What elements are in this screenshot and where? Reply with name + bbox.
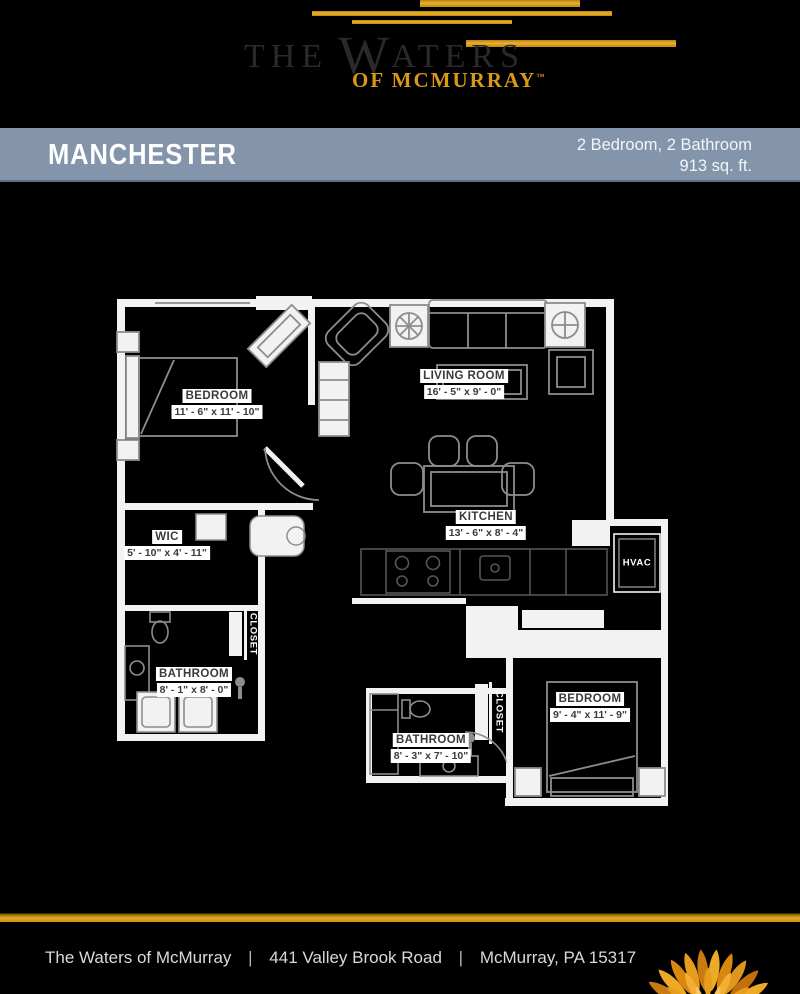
nightstand	[515, 768, 541, 796]
sofa	[429, 300, 547, 348]
toilet	[410, 701, 430, 717]
door-knob-icon	[235, 677, 245, 687]
plan-banner: MANCHESTER 2 Bedroom, 2 Bathroom 913 sq.…	[0, 128, 800, 182]
label-bedroom-1: BEDROOM 11' - 6" x 11' - 10"	[171, 389, 262, 419]
toilet	[152, 621, 168, 643]
plan-specs: 2 Bedroom, 2 Bathroom 913 sq. ft.	[577, 135, 752, 176]
label-bathroom-2: BATHROOM 8' - 3" x 7' - 10"	[391, 733, 471, 763]
label-kitchen: KITCHEN 13' - 6" x 8' - 4"	[446, 510, 526, 540]
door-leaf	[265, 448, 303, 486]
window-line	[155, 302, 250, 304]
nightstand	[117, 440, 139, 460]
armchair	[322, 299, 393, 370]
footer-separator: |	[459, 948, 463, 967]
dining-chair	[467, 436, 497, 466]
flyer-page: THEWATERS OF MCMURRAY™ MANCHESTER 2 Bedr…	[0, 0, 800, 994]
footer-address: The Waters of McMurray | 441 Valley Broo…	[45, 948, 636, 968]
nightstand	[639, 768, 665, 796]
nightstand	[117, 332, 139, 352]
toilet-tank	[402, 700, 410, 718]
spec-sqft: 913 sq. ft.	[577, 156, 752, 177]
brand-subtitle: OF MCMURRAY™	[352, 68, 544, 93]
wic-fixtures	[196, 514, 305, 556]
floorplan-drawing	[0, 185, 800, 915]
footer-street: 441 Valley Brook Road	[269, 948, 442, 967]
dresser	[248, 305, 310, 367]
footer-community: The Waters of McMurray	[45, 948, 231, 967]
dining-chair	[391, 463, 423, 495]
trademark-symbol: ™	[536, 72, 544, 81]
pantry	[572, 520, 610, 546]
stove	[386, 551, 450, 593]
bookcase	[319, 362, 349, 436]
spec-bed-bath: 2 Bedroom, 2 Bathroom	[577, 135, 752, 156]
dining-chair	[429, 436, 459, 466]
label-bedroom-2: BEDROOM 9' - 4" x 11' - 9"	[550, 692, 630, 722]
brand-name-the: THE	[244, 38, 328, 75]
plan-name: MANCHESTER	[48, 139, 237, 172]
page-footer: The Waters of McMurray | 441 Valley Broo…	[0, 922, 800, 994]
logo-water-line-icon	[420, 0, 580, 7]
kitchen-fixtures	[361, 549, 607, 595]
label-closet-2: CLOSET	[494, 691, 505, 733]
sink	[480, 556, 510, 580]
footer-separator: |	[248, 948, 252, 967]
logo-water-line-icon	[312, 11, 612, 16]
living-room-furniture	[319, 299, 593, 512]
label-closet-1: CLOSET	[248, 613, 259, 655]
dahlia-flower-image	[600, 923, 800, 994]
label-living-room: LIVING ROOM 16' - 5" x 9' - 0"	[420, 369, 508, 399]
label-wic: WIC 5' - 10" x 4' - 11"	[124, 530, 210, 560]
label-hvac: HVAC	[623, 558, 652, 569]
label-bathroom-1: BATHROOM 8' - 1" x 8' - 0"	[156, 667, 232, 697]
